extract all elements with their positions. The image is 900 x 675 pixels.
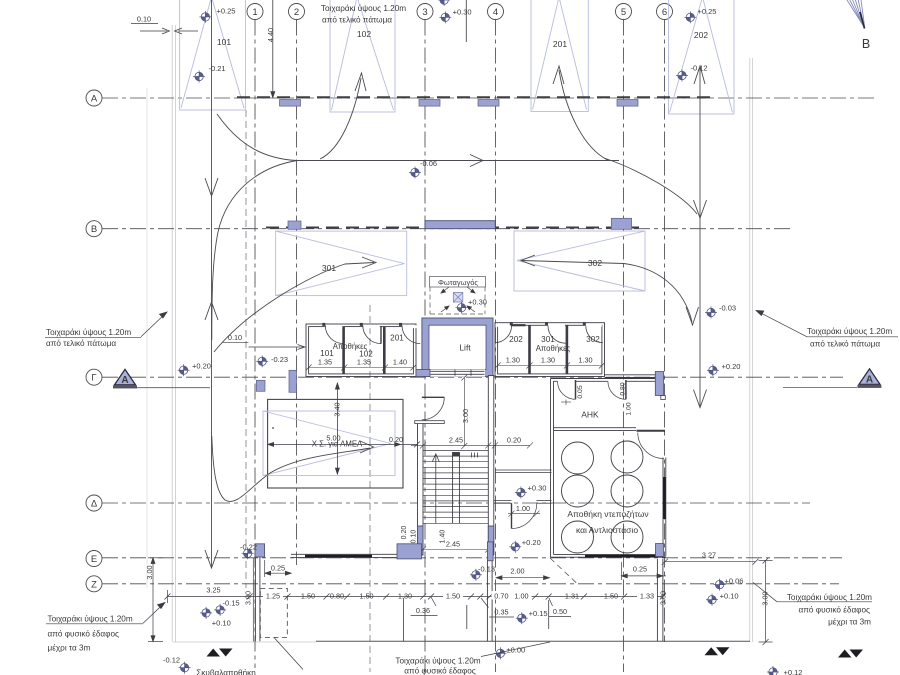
svg-text:102: 102 (357, 29, 371, 39)
svg-text:1.35: 1.35 (318, 358, 332, 367)
svg-text:0.10: 0.10 (137, 15, 151, 24)
svg-text:0.10: 0.10 (411, 530, 418, 544)
svg-text:Lift: Lift (459, 343, 471, 353)
svg-text:από φυσικό έδαφος: από φυσικό έδαφος (799, 606, 870, 615)
svg-text:3: 3 (422, 7, 427, 18)
svg-text:±0.00: ±0.00 (507, 646, 526, 655)
svg-text:Z: Z (91, 579, 97, 590)
svg-text:Αποθήκη ντεποζήτων: Αποθήκη ντεποζήτων (567, 509, 648, 519)
svg-text:Τοιχαράκι ύψους 1.20m: Τοιχαράκι ύψους 1.20m (321, 4, 406, 13)
svg-text:1.30: 1.30 (541, 356, 555, 365)
svg-text:0.05: 0.05 (577, 385, 584, 398)
svg-text:1.00: 1.00 (516, 504, 530, 513)
svg-text:1.40: 1.40 (393, 358, 407, 367)
svg-text:4: 4 (493, 7, 498, 18)
svg-text:201: 201 (390, 334, 404, 343)
svg-text:Φωταγωγός: Φωταγωγός (438, 278, 478, 287)
svg-text:1.50: 1.50 (446, 592, 460, 601)
svg-text:0.50: 0.50 (553, 607, 567, 616)
svg-text:3.27: 3.27 (702, 551, 716, 560)
svg-text:Δ: Δ (91, 499, 98, 510)
svg-text:και Αντλιοστάσιο: και Αντλιοστάσιο (576, 525, 638, 535)
svg-text:6: 6 (662, 7, 667, 18)
svg-text:από φυσικό έδαφος: από φυσικό έδαφος (48, 630, 119, 639)
svg-text:1.50: 1.50 (301, 592, 315, 601)
svg-text:3.40: 3.40 (333, 402, 342, 416)
svg-text:μέχρι τα 3m: μέχρι τα 3m (48, 644, 91, 653)
svg-text:1.30: 1.30 (506, 356, 520, 365)
svg-text:-0.06: -0.06 (420, 159, 437, 168)
svg-text:0.80: 0.80 (620, 382, 627, 395)
svg-text:Σκυβαλαποθήκη: Σκυβαλαποθήκη (196, 669, 256, 675)
svg-text:Γ: Γ (91, 373, 96, 384)
svg-text:+0.20: +0.20 (522, 538, 541, 547)
svg-text:+0.06: +0.06 (725, 577, 744, 586)
svg-text:1.33: 1.33 (640, 592, 654, 601)
svg-text:+0.25: +0.25 (698, 7, 717, 16)
svg-text:3.00: 3.00 (659, 591, 668, 605)
svg-text:0.20: 0.20 (401, 526, 408, 540)
svg-text:B: B (862, 37, 870, 51)
svg-text:0.35: 0.35 (494, 608, 508, 617)
svg-text:Τοιχαράκι ύψους 1.20m: Τοιχαράκι ύψους 1.20m (787, 593, 872, 602)
svg-text:0.20: 0.20 (389, 435, 403, 444)
svg-text:+0.30: +0.30 (528, 484, 547, 493)
svg-text:0.10: 0.10 (228, 333, 242, 342)
svg-text:-0.13: -0.13 (478, 565, 495, 574)
svg-text:1.50: 1.50 (604, 592, 618, 601)
svg-text:3.00: 3.00 (244, 591, 253, 605)
svg-text:-0.12: -0.12 (691, 64, 708, 73)
svg-text:E: E (91, 554, 97, 565)
svg-text:από τελικό πάτωμα: από τελικό πάτωμα (46, 339, 116, 348)
svg-text:0.36: 0.36 (416, 606, 430, 615)
svg-text:0.25: 0.25 (271, 564, 285, 573)
svg-text:-0.15: -0.15 (223, 599, 240, 608)
svg-text:από φυσικό έδαφος: από φυσικό έδαφος (404, 667, 475, 675)
svg-text:302: 302 (586, 335, 600, 344)
svg-text:1.25: 1.25 (266, 592, 280, 601)
svg-text:+0.30: +0.30 (453, 8, 472, 17)
svg-text:2.00: 2.00 (510, 567, 524, 576)
svg-text:A: A (866, 375, 873, 386)
svg-text:-0.22: -0.22 (240, 543, 257, 552)
svg-text:A: A (91, 94, 98, 105)
svg-text:0.20: 0.20 (507, 436, 521, 445)
svg-text:301: 301 (541, 335, 555, 344)
svg-text:2.45: 2.45 (449, 436, 463, 445)
svg-text:202: 202 (509, 335, 523, 344)
svg-text:Τοιχαράκι ύψους 1.20m: Τοιχαράκι ύψους 1.20m (48, 615, 133, 624)
svg-text:+0.20: +0.20 (722, 362, 741, 371)
svg-text:Τοιχαράκι ύψους 1.20m: Τοιχαράκι ύψους 1.20m (807, 327, 892, 336)
svg-text:5: 5 (621, 7, 626, 18)
svg-text:+0.20: +0.20 (192, 362, 211, 371)
svg-text:Τοιχαράκι ύψους 1.20m: Τοιχαράκι ύψους 1.20m (46, 328, 131, 337)
svg-text:101: 101 (217, 37, 231, 47)
svg-text:0.25: 0.25 (633, 565, 647, 574)
svg-text:3.25: 3.25 (206, 586, 220, 595)
svg-text:1.30: 1.30 (578, 356, 592, 365)
svg-text:+0.25: +0.25 (217, 7, 236, 16)
svg-text:-0.21: -0.21 (209, 64, 226, 73)
svg-text:Τοιχαράκι ύψους 1.20m: Τοιχαράκι ύψους 1.20m (395, 657, 480, 666)
svg-text:1.50: 1.50 (359, 592, 373, 601)
svg-text:3.00: 3.00 (761, 591, 770, 605)
svg-text:1.00: 1.00 (514, 592, 528, 601)
svg-text:3.00: 3.00 (145, 565, 154, 579)
svg-text:1: 1 (252, 7, 257, 18)
svg-text:-0.12: -0.12 (163, 656, 180, 665)
svg-text:2: 2 (294, 7, 299, 18)
svg-text:1.00: 1.00 (626, 402, 633, 415)
svg-text:0.80: 0.80 (330, 592, 344, 601)
svg-text:0.70: 0.70 (494, 592, 508, 601)
svg-text:201: 201 (553, 39, 567, 49)
svg-text:202: 202 (694, 30, 708, 40)
svg-text:1.35: 1.35 (357, 358, 371, 367)
svg-text:+0.10: +0.10 (720, 592, 739, 601)
svg-text:4.40: 4.40 (266, 28, 275, 42)
svg-text:+0.10: +0.10 (212, 619, 231, 628)
svg-text:5.00: 5.00 (326, 434, 340, 443)
svg-text:1.40: 1.40 (440, 530, 447, 544)
svg-text:-0.03: -0.03 (719, 304, 736, 313)
svg-text:μέχρι τα 3m: μέχρι τα 3m (828, 618, 871, 627)
svg-text:1.31: 1.31 (565, 592, 579, 601)
svg-text:Αποθήκες: Αποθήκες (536, 344, 571, 353)
svg-text:από τελικό πάτωμα: από τελικό πάτωμα (322, 16, 392, 25)
svg-text:2.45: 2.45 (446, 540, 460, 549)
svg-text:B: B (91, 224, 97, 235)
svg-text:1.30: 1.30 (398, 592, 412, 601)
svg-text:+0.15: +0.15 (529, 609, 548, 618)
svg-text:ΑΗΚ: ΑΗΚ (581, 410, 599, 420)
svg-text:από τελικό πάτωμα: από τελικό πάτωμα (810, 340, 880, 349)
svg-text:+0.12: +0.12 (784, 668, 803, 675)
svg-text:-0.23: -0.23 (271, 355, 288, 364)
svg-text:+0.30: +0.30 (468, 298, 487, 307)
svg-text:3.00: 3.00 (461, 409, 470, 423)
svg-text:A: A (121, 375, 128, 386)
